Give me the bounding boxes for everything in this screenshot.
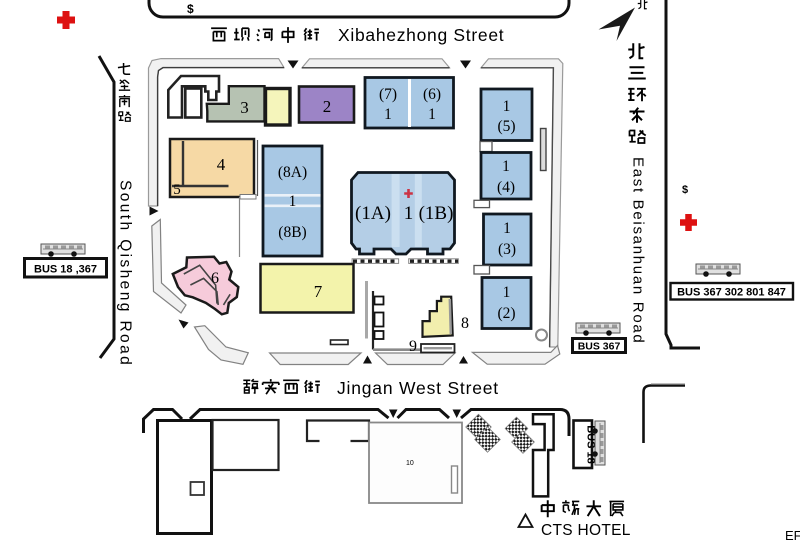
svg-text:(6): (6) bbox=[423, 86, 441, 103]
svg-text:BUS 18 ,367: BUS 18 ,367 bbox=[34, 264, 97, 276]
svg-text:9: 9 bbox=[409, 338, 417, 355]
svg-text:10: 10 bbox=[406, 460, 414, 467]
svg-text:1: 1 bbox=[503, 220, 511, 237]
svg-text:1: 1 bbox=[384, 106, 392, 123]
svg-text:East Beisanhuan Road: East Beisanhuan Road bbox=[630, 157, 647, 344]
svg-text:1: 1 bbox=[289, 193, 297, 210]
svg-text:5: 5 bbox=[173, 182, 181, 198]
svg-text:CTS HOTEL: CTS HOTEL bbox=[541, 522, 631, 539]
svg-text:(5): (5) bbox=[497, 118, 515, 135]
svg-text:8: 8 bbox=[461, 315, 469, 332]
svg-text:3: 3 bbox=[240, 98, 249, 117]
svg-text:1: 1 bbox=[502, 158, 510, 175]
svg-text:6: 6 bbox=[211, 270, 219, 287]
svg-text:(8B): (8B) bbox=[278, 224, 306, 241]
svg-text:South Qisheng Road: South Qisheng Road bbox=[117, 180, 134, 367]
svg-text:(1B): (1B) bbox=[419, 203, 454, 224]
svg-text:(1A): (1A) bbox=[355, 203, 391, 224]
svg-text:7: 7 bbox=[314, 282, 323, 301]
svg-text:2: 2 bbox=[323, 97, 332, 116]
svg-text:(8A): (8A) bbox=[278, 164, 307, 181]
svg-text:(7): (7) bbox=[379, 86, 397, 103]
svg-text:(4): (4) bbox=[497, 179, 515, 196]
svg-text:$: $ bbox=[187, 2, 194, 16]
svg-text:1: 1 bbox=[503, 98, 511, 115]
svg-text:BUS 367 302 801 847: BUS 367 302 801 847 bbox=[677, 287, 786, 299]
svg-text:4: 4 bbox=[217, 155, 226, 174]
svg-text:(3): (3) bbox=[498, 241, 516, 258]
svg-text:$: $ bbox=[682, 184, 688, 196]
svg-text:Xibahezhong Street: Xibahezhong Street bbox=[338, 25, 504, 45]
svg-text:1: 1 bbox=[428, 106, 436, 123]
svg-text:(2): (2) bbox=[497, 305, 515, 322]
svg-text:1: 1 bbox=[404, 203, 414, 224]
svg-text:Jingan West Street: Jingan West Street bbox=[337, 378, 499, 398]
svg-text:EF: EF bbox=[785, 528, 800, 543]
svg-text:1: 1 bbox=[503, 284, 511, 301]
svg-text:BUS 367: BUS 367 bbox=[578, 341, 621, 353]
